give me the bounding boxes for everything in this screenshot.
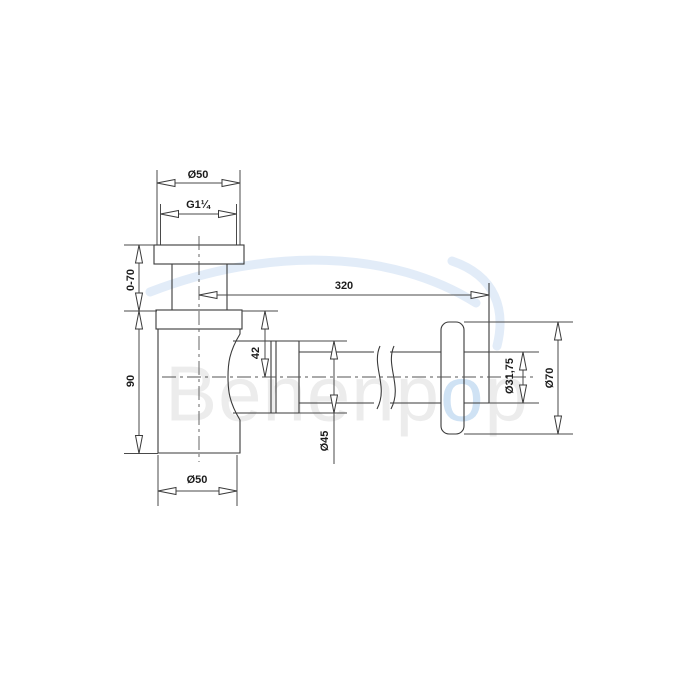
centerlines [162, 236, 536, 462]
dim-label-top-diameter: Ø50 [188, 169, 209, 181]
pipe-break-symbol [377, 346, 381, 409]
dim-label-body-diameter: Ø50 [187, 474, 208, 486]
pipe-break-symbol [391, 346, 395, 409]
dim-label-thread-size: G1¼ [186, 199, 210, 211]
dimension-lines [124, 183, 573, 506]
dim-label-wall-flange-diameter: Ø70 [544, 368, 556, 389]
dim-label-wall-pipe-diameter: Ø31,75 [504, 358, 516, 394]
wall-rosette [441, 322, 464, 434]
siphon-drawing [0, 0, 685, 685]
technical-drawing-page: Benenpop [0, 0, 685, 685]
wall-flange [441, 283, 489, 434]
dim-label-outlet-nut-diameter: Ø45 [319, 431, 331, 452]
dim-label-adjustable-height: 0-70 [125, 269, 137, 291]
dim-label-body-height: 90 [125, 375, 137, 387]
dim-label-outlet-offset: 42 [250, 347, 262, 359]
dim-label-horizontal-length: 320 [335, 280, 353, 292]
